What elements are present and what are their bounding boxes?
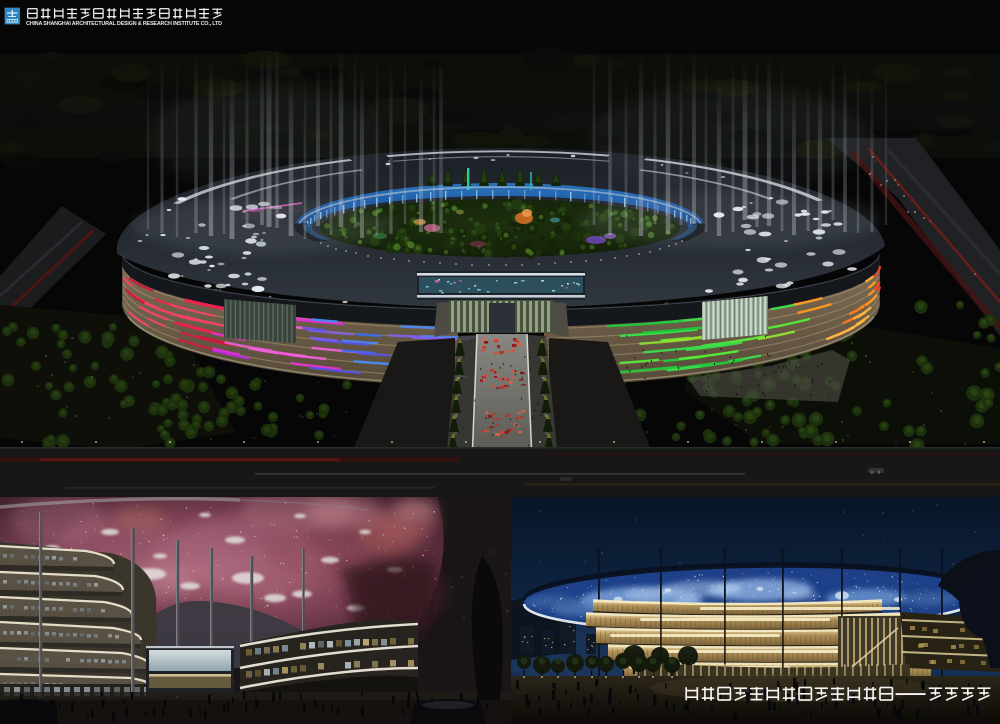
svg-text:CHINA SHANGHAI ARCHITECTURAL D: CHINA SHANGHAI ARCHITECTURAL DESIGN & RE… (26, 21, 222, 27)
